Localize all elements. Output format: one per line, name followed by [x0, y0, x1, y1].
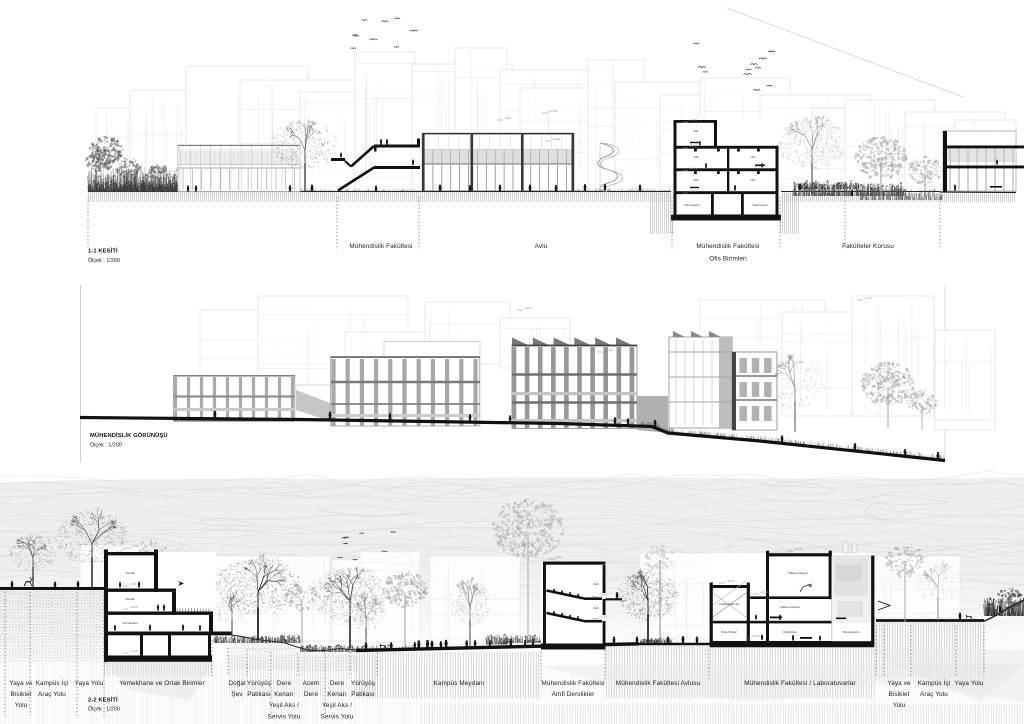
- svg-text:Teknik Hacim: Teknik Hacim: [684, 203, 699, 207]
- svg-text:Yürüyüş: Yürüyüş: [247, 680, 271, 687]
- svg-text:Ofis Birimleri: Ofis Birimleri: [709, 256, 747, 263]
- svg-text:+21,82: +21,82: [599, 615, 608, 619]
- svg-text:Ortaklaşılan Lab: Ortaklaşılan Lab: [719, 602, 740, 606]
- svg-text:+23,16: +23,16: [752, 634, 761, 638]
- svg-text:Servis Yolu: Servis Yolu: [321, 714, 354, 721]
- svg-text:Kampüs Meydanı: Kampüs Meydanı: [433, 680, 484, 687]
- svg-text:Dere: Dere: [277, 680, 292, 687]
- svg-text:+2,69: +2,69: [504, 116, 511, 120]
- svg-text:Dere: Dere: [304, 691, 319, 698]
- svg-text:Patikası: Patikası: [247, 691, 271, 698]
- svg-text:Yaya Yolu: Yaya Yolu: [75, 680, 104, 687]
- svg-text:Yaya Yolu: Yaya Yolu: [955, 680, 984, 687]
- svg-text:+21,93: +21,93: [760, 590, 769, 594]
- svg-text:Derslik: Derslik: [125, 571, 135, 575]
- svg-text:+21,24: +21,24: [604, 348, 613, 352]
- svg-text:+24,75: +24,75: [794, 547, 803, 551]
- svg-text:+20,68: +20,68: [689, 189, 698, 193]
- svg-text:Kenarı: Kenarı: [274, 691, 294, 698]
- svg-text:Yolu: Yolu: [15, 702, 28, 709]
- svg-text:Bisiklet: Bisiklet: [10, 691, 31, 698]
- svg-text:+6,41: +6,41: [130, 582, 137, 586]
- svg-text:Avlu: Avlu: [535, 243, 548, 250]
- svg-text:+24,54: +24,54: [689, 144, 698, 148]
- svg-text:Ofis: Ofis: [751, 178, 757, 182]
- svg-text:Mühendislik Fakültesi Avlusu: Mühendislik Fakültesi Avlusu: [616, 680, 701, 687]
- svg-text:+21,73: +21,73: [689, 167, 698, 171]
- svg-text:Makine Atölyesi: Makine Atölyesi: [788, 571, 808, 575]
- svg-text:Dere: Dere: [330, 680, 345, 687]
- svg-text:+8,46: +8,46: [132, 544, 139, 548]
- svg-text:Amfi: Amfi: [593, 606, 599, 610]
- svg-text:2-2 KESİTİ: 2-2 KESİTİ: [88, 697, 118, 704]
- svg-text:Mühendislik Fakültesi: Mühendislik Fakültesi: [541, 680, 604, 687]
- svg-text:+13,31: +13,31: [524, 306, 533, 310]
- svg-text:Amfi Derslikler: Amfi Derslikler: [552, 691, 595, 698]
- svg-text:Ofis: Ofis: [694, 129, 700, 133]
- svg-text:Derslik: Derslik: [125, 597, 135, 601]
- svg-text:Ölçek : 1/200: Ölçek : 1/200: [90, 442, 122, 449]
- svg-text:+12,26: +12,26: [726, 579, 735, 583]
- svg-text:Mühendislik Fakültesi: Mühendislik Fakültesi: [696, 243, 759, 250]
- svg-text:Yolu: Yolu: [893, 702, 906, 709]
- svg-text:Amfi: Amfi: [593, 582, 599, 586]
- svg-text:Teknik Hacim: Teknik Hacim: [752, 203, 767, 207]
- svg-text:Yemekhane: Yemekhane: [122, 621, 138, 625]
- svg-text:Şev: Şev: [231, 691, 243, 698]
- svg-text:Ofis: Ofis: [694, 155, 700, 159]
- svg-text:+6,63: +6,63: [555, 555, 562, 559]
- svg-text:Ölçek : 1/200: Ölçek : 1/200: [88, 257, 120, 264]
- svg-text:Araç Yolu: Araç Yolu: [920, 691, 948, 698]
- svg-text:+19,57: +19,57: [599, 593, 608, 597]
- svg-text:Makine Atölyesi: Makine Atölyesi: [780, 605, 800, 609]
- svg-text:Fakülteler Korusu: Fakülteler Korusu: [842, 243, 894, 250]
- svg-text:Yürüyüş: Yürüyüş: [351, 680, 375, 687]
- svg-text:+23,54: +23,54: [552, 137, 561, 141]
- svg-text:Yaya ve: Yaya ve: [9, 680, 33, 687]
- svg-text:Yaya ve: Yaya ve: [887, 680, 911, 687]
- svg-text:1-1 KESİTİ: 1-1 KESİTİ: [88, 248, 118, 255]
- svg-text:Yeşil Aks /: Yeşil Aks /: [322, 702, 352, 709]
- svg-text:Yemekhane ve Ortak Birimler: Yemekhane ve Ortak Birimler: [119, 680, 205, 687]
- svg-text:+12,53: +12,53: [689, 118, 698, 122]
- svg-text:Ölçek : 1/200: Ölçek : 1/200: [88, 706, 120, 713]
- svg-text:Acem: Acem: [303, 680, 320, 687]
- svg-text:+24,59: +24,59: [549, 109, 558, 113]
- svg-text:+14,60: +14,60: [130, 605, 139, 609]
- svg-text:Kenarı: Kenarı: [327, 691, 347, 698]
- svg-text:Ofis: Ofis: [694, 178, 700, 182]
- svg-text:Kampüs İçi: Kampüs İçi: [36, 678, 69, 687]
- svg-text:Doğal: Doğal: [228, 680, 245, 687]
- svg-text:Kampüs İçi: Kampüs İçi: [918, 678, 951, 687]
- svg-text:Mühendislik Fakültesi: Mühendislik Fakültesi: [349, 243, 412, 250]
- svg-text:Araç Yolu: Araç Yolu: [38, 691, 66, 698]
- svg-text:Bisiklet: Bisiklet: [888, 691, 909, 698]
- svg-text:Mühendislik Fakültesi / Labora: Mühendislik Fakültesi / Laboratuvarlar: [744, 680, 856, 687]
- svg-text:MÜHENDİSLİK GÖRÜNÜŞÜ: MÜHENDİSLİK GÖRÜNÜŞÜ: [90, 432, 168, 439]
- svg-text:Servis Yolu: Servis Yolu: [268, 714, 301, 721]
- svg-text:Dijital Ders: Dijital Ders: [783, 630, 797, 634]
- svg-text:+17,20: +17,20: [130, 649, 139, 653]
- svg-text:Proje Ofisleri: Proje Ofisleri: [721, 630, 737, 634]
- svg-text:Yeşil Aks /: Yeşil Aks /: [269, 702, 299, 709]
- svg-text:Teknik Hacim: Teknik Hacim: [843, 630, 860, 634]
- svg-text:Ofis: Ofis: [751, 155, 757, 159]
- svg-text:Patikası: Patikası: [351, 691, 375, 698]
- svg-text:+17,17: +17,17: [864, 296, 873, 300]
